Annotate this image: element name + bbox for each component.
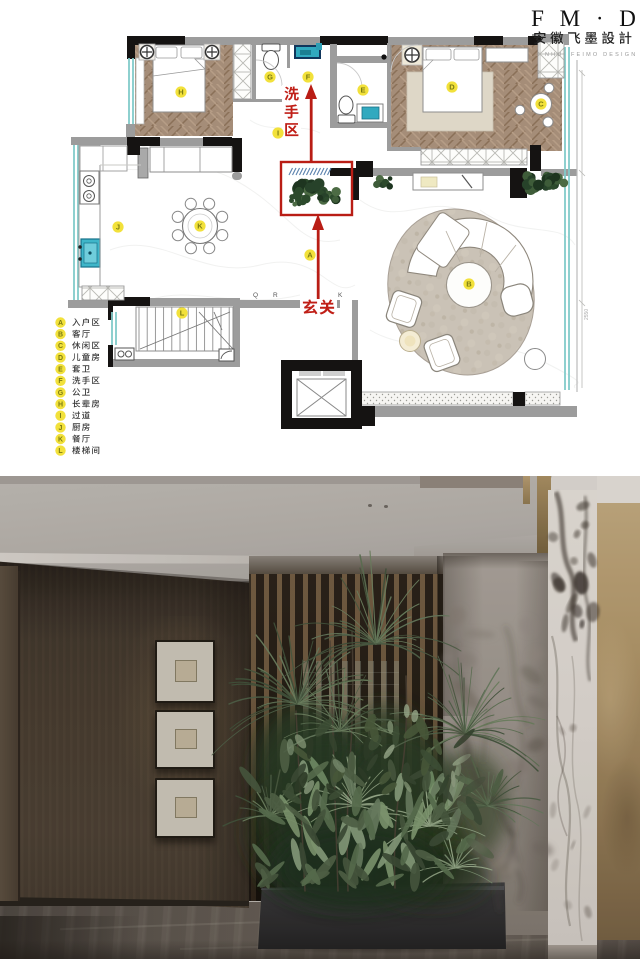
svg-text:C: C: [58, 343, 63, 350]
svg-text:R: R: [273, 292, 278, 299]
svg-text:Q: Q: [253, 292, 258, 299]
svg-text:K: K: [58, 436, 63, 443]
svg-text:H: H: [58, 401, 63, 408]
svg-text:G: G: [267, 73, 273, 82]
svg-text:I: I: [60, 413, 62, 420]
svg-text:K: K: [338, 292, 343, 299]
svg-text:I: I: [277, 129, 279, 138]
svg-text:B: B: [466, 280, 472, 289]
svg-text:J: J: [116, 223, 120, 232]
svg-text:D: D: [449, 83, 455, 92]
svg-text:E: E: [58, 367, 63, 374]
svg-text:C: C: [538, 100, 544, 109]
svg-text:F: F: [306, 73, 311, 82]
svg-text:K: K: [197, 222, 203, 231]
svg-text:F: F: [58, 378, 63, 385]
svg-text:B: B: [58, 332, 63, 339]
svg-text:H: H: [178, 88, 183, 97]
svg-text:L: L: [180, 309, 185, 318]
svg-text:F M · D: F M · D: [531, 6, 640, 31]
svg-text:NHUI FEIMO DESIGN: NHUI FEIMO DESIGN: [545, 52, 637, 58]
svg-text:J: J: [59, 425, 63, 432]
svg-text:A: A: [58, 320, 63, 327]
svg-text:A: A: [307, 251, 313, 260]
svg-text:D: D: [58, 355, 63, 362]
svg-text:2550: 2550: [584, 309, 590, 320]
svg-text:L: L: [58, 448, 63, 455]
svg-text:G: G: [58, 390, 64, 397]
svg-text:E: E: [360, 86, 365, 95]
